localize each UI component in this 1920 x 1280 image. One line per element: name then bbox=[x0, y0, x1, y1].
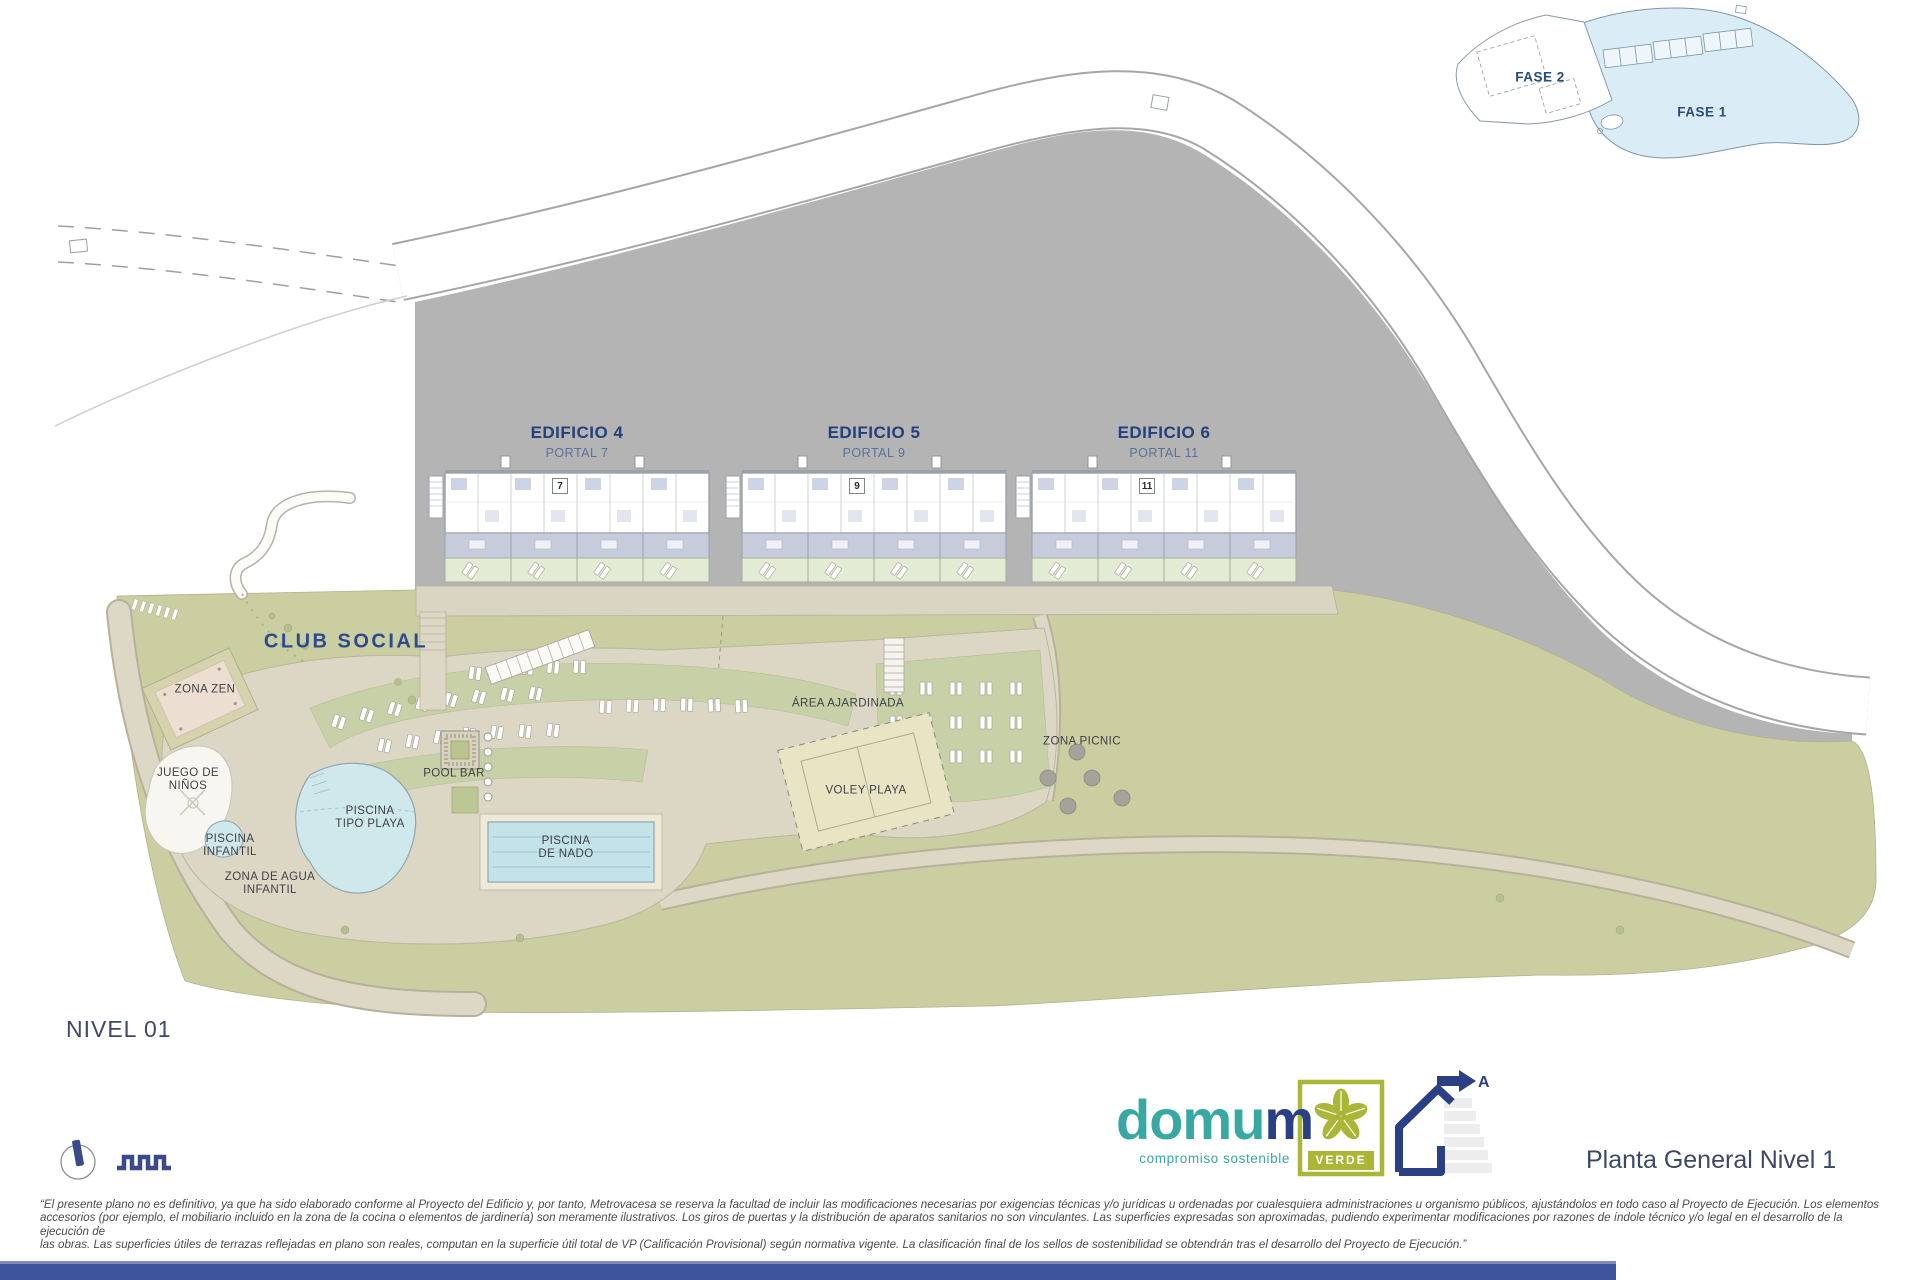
zona-agua-infantil-label: ZONA DE AGUA INFANTIL bbox=[225, 871, 315, 897]
domum-wordmark: domum bbox=[1116, 1092, 1313, 1148]
plan-title: Planta General Nivel 1 bbox=[1586, 1146, 1836, 1175]
pool-bar-label: POOL BAR bbox=[423, 768, 485, 781]
juego-ninos-label: JUEGO DE NIÑOS bbox=[157, 767, 219, 793]
building-label-edificio-4: EDIFICIO 4 PORTAL 7 bbox=[531, 423, 624, 460]
zona-zen-label: ZONA ZEN bbox=[175, 684, 236, 697]
building-portal: PORTAL 9 bbox=[828, 446, 921, 460]
domum-tagline: compromiso sostenible bbox=[1116, 1151, 1313, 1166]
building-name: EDIFICIO 4 bbox=[531, 423, 624, 443]
building-name: EDIFICIO 5 bbox=[828, 423, 921, 443]
building-portal: PORTAL 7 bbox=[531, 446, 624, 460]
inset-fase1-area bbox=[1580, 8, 1859, 158]
piscina-tipo-playa-label: PISCINA TIPO PLAYA bbox=[335, 805, 404, 831]
building-name: EDIFICIO 6 bbox=[1118, 423, 1211, 443]
portal-number-chip: 9 bbox=[849, 478, 865, 494]
footer-bar bbox=[0, 1261, 1616, 1280]
building-edificio-5 bbox=[726, 456, 1006, 582]
building-edificio-6 bbox=[1016, 456, 1296, 582]
portal-number-chip: 7 bbox=[552, 478, 568, 494]
site-plan-page: EDIFICIO 4 PORTAL 7 EDIFICIO 5 PORTAL 9 … bbox=[0, 0, 1920, 1280]
level-label: NIVEL 01 bbox=[66, 1016, 172, 1043]
wave-symbol-icon bbox=[117, 1157, 171, 1168]
voley-playa-label: VOLEY PLAYA bbox=[825, 785, 906, 798]
energy-rating-letter: A bbox=[1478, 1074, 1490, 1092]
building-label-edificio-6: EDIFICIO 6 PORTAL 11 bbox=[1118, 423, 1211, 460]
zona-picnic-label: ZONA PICNIC bbox=[1043, 736, 1121, 749]
inset-fase2-label: FASE 2 bbox=[1515, 70, 1565, 85]
north-indicator-icon bbox=[61, 1140, 95, 1179]
building-edificio-4 bbox=[429, 456, 709, 582]
building-label-edificio-5: EDIFICIO 5 PORTAL 9 bbox=[828, 423, 921, 460]
buildings bbox=[429, 456, 1296, 582]
disclaimer-text: “El presente plano no es definitivo, ya … bbox=[40, 1198, 1890, 1252]
club-social-label: CLUB SOCIAL bbox=[264, 636, 428, 649]
verde-badge-label: VERDE bbox=[1315, 1153, 1366, 1167]
piscina-de-nado-label: PISCINA DE NADO bbox=[538, 835, 593, 861]
piscina-infantil-label: PISCINA INFANTIL bbox=[203, 833, 257, 859]
inset-fase1-label: FASE 1 bbox=[1677, 105, 1727, 120]
building-portal: PORTAL 11 bbox=[1118, 446, 1211, 460]
portal-number-chip: 11 bbox=[1139, 478, 1155, 494]
domum-logo: domum compromiso sostenible bbox=[1116, 1092, 1313, 1166]
area-ajardinada-label: ÁREA AJARDINADA bbox=[792, 698, 904, 711]
